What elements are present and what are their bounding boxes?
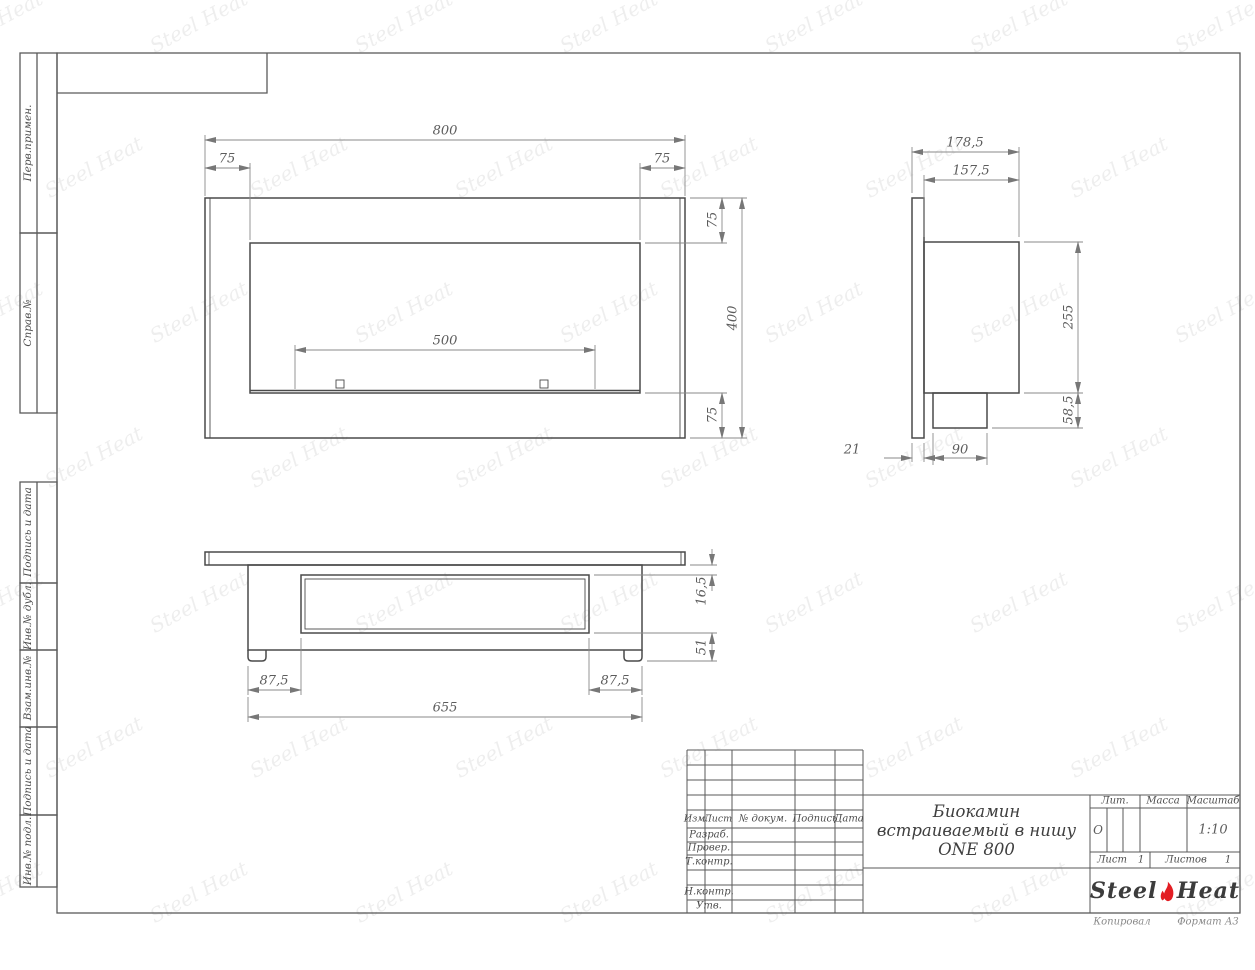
- tb-col-data: Дата: [834, 814, 864, 825]
- dim-front-margin-right: 75: [654, 152, 671, 167]
- dim-front-margin-bottom: 75: [706, 407, 721, 424]
- steelheat-logo: Steel Heat: [1090, 868, 1240, 913]
- dim-front-burner-width: 500: [433, 334, 458, 349]
- dim-bottom-body-width: 655: [433, 701, 458, 716]
- frame-label-podpis-data-1: Подпись и дата: [22, 487, 34, 577]
- tb-listov-label: Листов: [1165, 855, 1207, 866]
- tb-row-tkontr: Т.контр.: [685, 857, 733, 868]
- dim-side-flange-thickness: 21: [844, 443, 861, 458]
- drawing-title-line1: Биокамин: [933, 803, 1021, 822]
- frame-label-perv-primen: Перв.примен.: [22, 105, 34, 182]
- frame-label-inv-podl: Инв.№ подл.: [22, 817, 34, 886]
- tb-row-prover: Провер.: [688, 843, 730, 854]
- dim-side-depth-total: 178,5: [946, 136, 983, 151]
- front-view: [205, 135, 747, 438]
- drawing-title: Биокамин встраиваемый в нишу ONE 800: [863, 795, 1090, 868]
- tb-list-label: Лист: [1097, 855, 1127, 866]
- tb-col-list: Лист: [704, 814, 732, 825]
- footer-kopiroval: Копировал: [1093, 917, 1150, 928]
- tb-row-nkontr: Н.контр.: [684, 887, 734, 898]
- tb-row-razrab: Разраб.: [689, 830, 729, 841]
- dim-front-margin-top: 75: [706, 212, 721, 229]
- tb-masshtab-value: 1:10: [1198, 823, 1227, 838]
- frame-label-podpis-data-2: Подпись и дата: [22, 726, 34, 816]
- dim-front-height: 400: [726, 306, 741, 331]
- flame-icon: [1158, 876, 1175, 906]
- bottom-view: [205, 549, 717, 722]
- dim-side-depth-body: 157,5: [952, 164, 989, 179]
- dim-bottom-margin-right: 87,5: [601, 674, 630, 689]
- side-view: [884, 147, 1083, 465]
- dim-side-burner-height: 58,5: [1062, 396, 1077, 425]
- dim-side-body-height: 255: [1062, 305, 1077, 330]
- frame-label-sprav-no: Справ.№: [22, 299, 34, 346]
- tb-lit-label: Лит.: [1101, 796, 1128, 807]
- frame-label-vzam-inv: Взам.инв.№: [22, 656, 34, 721]
- tb-masshtab-label: Масштаб: [1187, 796, 1240, 807]
- tb-col-dokum: № докум.: [739, 814, 787, 825]
- logo-steel-text: Steel: [1090, 878, 1157, 904]
- logo-heat-text: Heat: [1177, 878, 1240, 904]
- drawing-title-line3: ONE 800: [938, 841, 1015, 860]
- tb-list-value: 1: [1138, 855, 1144, 866]
- tb-listov-value: 1: [1225, 855, 1231, 866]
- sheet-frame: [20, 53, 1240, 913]
- dim-front-margin-left: 75: [219, 152, 236, 167]
- tb-lit-value: О: [1093, 823, 1103, 837]
- dim-front-width: 800: [433, 124, 458, 139]
- footer-format: Формат А3: [1177, 917, 1239, 928]
- tb-row-utv: Утв.: [696, 901, 722, 912]
- drawing-sheet: Steel HeatSteel HeatSteel HeatSteel Heat…: [0, 0, 1255, 970]
- dim-side-burner-depth: 90: [952, 443, 969, 458]
- frame-label-inv-dubl: Инв.№ дубл.: [22, 582, 34, 650]
- dim-bottom-flange-offset: 16,5: [695, 577, 710, 606]
- tb-massa-label: Масса: [1146, 796, 1179, 807]
- dim-bottom-inner-depth: 51: [695, 639, 710, 656]
- drawing-title-line2: встраиваемый в нишу: [877, 822, 1076, 841]
- dim-bottom-margin-left: 87,5: [260, 674, 289, 689]
- tb-col-podpis: Подпись: [792, 814, 837, 825]
